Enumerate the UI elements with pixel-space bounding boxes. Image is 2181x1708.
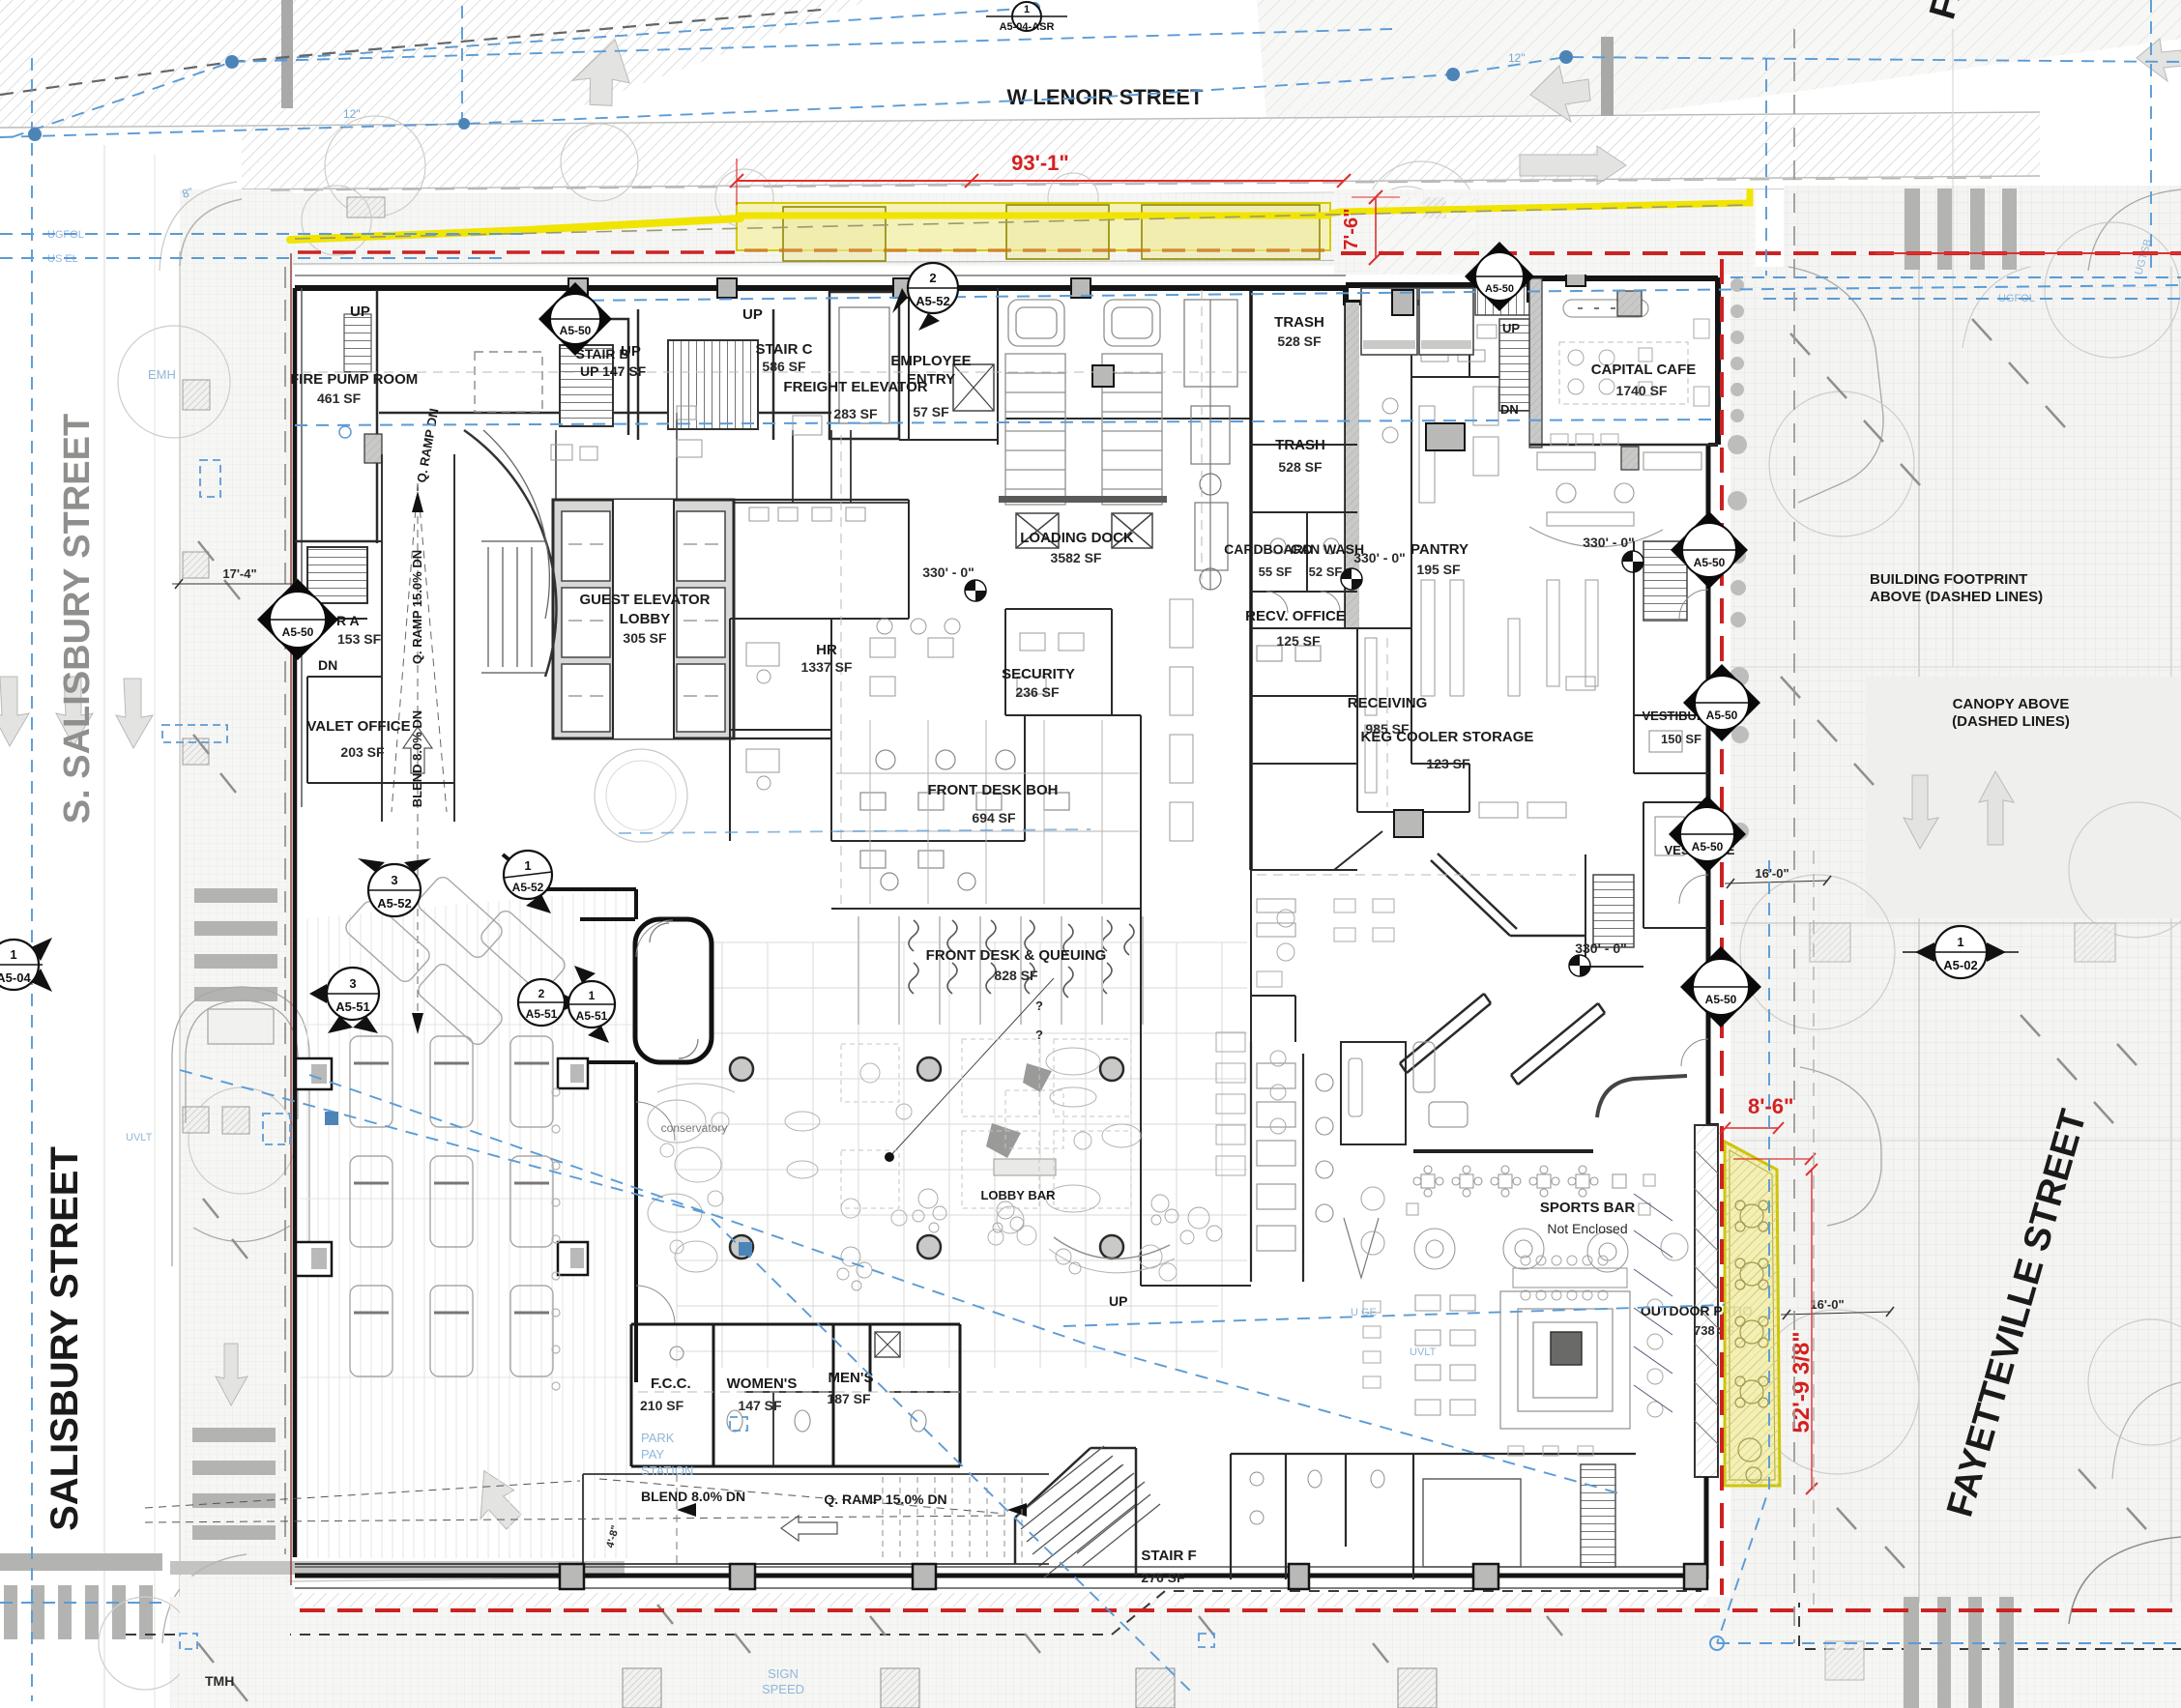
svg-text:PARK: PARK [641,1431,675,1445]
svg-text:1: 1 [1024,4,1030,15]
svg-text:A5-52: A5-52 [512,881,544,894]
svg-text:12": 12" [343,107,361,121]
svg-text:SECURITY: SECURITY [1002,666,1075,682]
svg-text:?: ? [1035,1028,1043,1042]
svg-text:DN: DN [1500,402,1519,417]
svg-text:RECEIVING: RECEIVING [1348,695,1428,711]
svg-text:(DASHED LINES): (DASHED LINES) [1952,713,2070,730]
svg-text:828 SF: 828 SF [994,968,1038,983]
svg-text:R A: R A [336,613,360,628]
svg-text:A5-02: A5-02 [1943,958,1977,972]
svg-text:8'-6": 8'-6" [1748,1094,1793,1118]
svg-text:17'-4": 17'-4" [222,566,256,581]
svg-text:A5-04: A5-04 [0,970,31,985]
svg-text:HR: HR [816,642,837,658]
svg-text:GUEST ELEVATOR: GUEST ELEVATOR [579,592,710,608]
svg-text:VALET OFFICE: VALET OFFICE [306,718,410,735]
svg-text:TRASH: TRASH [1275,437,1325,453]
svg-text:12": 12" [1508,51,1526,65]
svg-text:2: 2 [538,987,545,1000]
svg-text:LOBBY BAR: LOBBY BAR [980,1188,1056,1202]
svg-text:A5-04-ASR: A5-04-ASR [1000,21,1055,33]
svg-text:283 SF: 283 SF [833,406,878,421]
svg-text:1: 1 [589,989,596,1002]
svg-text:A5-50: A5-50 [560,324,592,337]
svg-text:57 SF: 57 SF [913,404,949,420]
svg-text:ENTRY: ENTRY [907,371,955,388]
svg-text:SALISBURY STREET: SALISBURY STREET [44,1146,86,1531]
svg-text:195 SF: 195 SF [1416,562,1461,577]
svg-text:UP: UP [1502,321,1520,335]
svg-text:F.C.C.: F.C.C. [651,1375,691,1392]
svg-text:A5-52: A5-52 [916,294,949,308]
svg-text:BLEND 8.0% DN: BLEND 8.0% DN [641,1489,745,1504]
svg-text:3: 3 [391,873,397,887]
svg-text:UVLT: UVLT [1410,1346,1437,1358]
svg-text:52'-9 3/8": 52'-9 3/8" [1788,1331,1815,1433]
svg-text:?: ? [1035,999,1043,1013]
svg-text:A5-50: A5-50 [282,625,314,639]
svg-text:461 SF: 461 SF [317,391,362,406]
svg-text:SPEED: SPEED [762,1682,804,1696]
svg-text:PAY: PAY [641,1447,664,1462]
svg-text:EMH: EMH [148,367,176,382]
svg-text:PANTRY: PANTRY [1410,541,1469,558]
svg-text:RECV. OFFICE: RECV. OFFICE [1245,608,1346,624]
svg-text:330' - 0": 330' - 0" [1575,941,1627,956]
svg-text:187 SF: 187 SF [827,1391,871,1406]
svg-text:EMPLOYEE: EMPLOYEE [890,353,971,369]
svg-text:ABOVE (DASHED LINES): ABOVE (DASHED LINES) [1870,589,2043,605]
svg-text:1: 1 [1957,935,1963,949]
svg-text:3582 SF: 3582 SF [1051,550,1102,565]
svg-text:FIRE PUMP ROOM: FIRE PUMP ROOM [290,371,418,388]
svg-text:UP 147 SF: UP 147 SF [580,363,647,379]
svg-text:STATION: STATION [641,1463,693,1478]
svg-text:Not Enclosed: Not Enclosed [1547,1221,1627,1236]
svg-text:153 SF: 153 SF [337,631,382,647]
svg-text:330' - 0": 330' - 0" [1583,535,1635,550]
svg-text:586 SF: 586 SF [762,359,806,374]
svg-text:conservatory: conservatory [661,1121,728,1135]
svg-text:TMH: TMH [205,1673,234,1689]
svg-text:SIGN: SIGN [768,1666,799,1681]
svg-text:52 SF: 52 SF [1309,565,1343,579]
svg-text:A5-51: A5-51 [526,1007,558,1021]
svg-text:LOBBY: LOBBY [620,611,671,627]
svg-text:694 SF: 694 SF [972,810,1016,825]
svg-text:528 SF: 528 SF [1278,459,1323,475]
svg-text:123 SF: 123 SF [1426,756,1470,771]
svg-text:BLEND 8.0% DN: BLEND 8.0% DN [410,710,424,807]
svg-text:55 SF: 55 SF [1259,565,1293,579]
svg-text:125 SF: 125 SF [1276,633,1321,649]
svg-text:A5-51: A5-51 [576,1009,608,1023]
svg-text:CANOPY ABOVE: CANOPY ABOVE [1953,696,2070,712]
svg-text:KEG COOLER STORAGE: KEG COOLER STORAGE [1361,729,1534,745]
svg-text:S. SALISBURY STREET: S. SALISBURY STREET [57,414,98,824]
svg-text:TRASH: TRASH [1274,314,1324,331]
svg-text:SPORTS BAR: SPORTS BAR [1540,1200,1636,1216]
svg-text:1: 1 [524,858,531,873]
svg-text:UGFOL: UGFOL [47,229,84,241]
svg-text:16'-0": 16'-0" [1810,1297,1844,1312]
svg-text:528 SF: 528 SF [1277,333,1322,349]
svg-text:7'-6": 7'-6" [1341,208,1362,249]
svg-text:UP: UP [350,304,370,320]
svg-text:DN: DN [318,657,337,673]
svg-text:210 SF: 210 SF [640,1398,684,1413]
svg-text:1740 SF: 1740 SF [1616,383,1668,398]
svg-text:LOADING DOCK: LOADING DOCK [1020,530,1134,546]
svg-text:Q. RAMP 15.0% DN: Q. RAMP 15.0% DN [824,1491,946,1507]
svg-text:STAIR C: STAIR C [756,341,813,358]
svg-text:A5-51: A5-51 [335,999,369,1014]
svg-text:A5-50: A5-50 [1694,556,1726,569]
svg-text:147 SF: 147 SF [738,1398,782,1413]
svg-text:UP: UP [1109,1293,1127,1309]
svg-text:3: 3 [349,976,356,991]
svg-text:UP: UP [621,343,641,360]
svg-text:93'-1": 93'-1" [1011,151,1069,175]
svg-text:16'-0": 16'-0" [1755,866,1788,881]
svg-text:UP: UP [742,306,763,323]
svg-text:CAPITAL CAFE: CAPITAL CAFE [1591,362,1697,378]
svg-text:A5-50: A5-50 [1705,993,1737,1006]
svg-text:Q. RAMP 15.0% DN: Q. RAMP 15.0% DN [410,550,424,664]
svg-text:1: 1 [10,947,16,962]
svg-text:236 SF: 236 SF [1015,684,1060,700]
svg-text:A5-50: A5-50 [1485,283,1514,295]
svg-text:330' - 0": 330' - 0" [1353,550,1406,565]
svg-text:UVLT: UVLT [126,1132,153,1143]
svg-text:A5-50: A5-50 [1692,840,1724,854]
svg-text:STAIR F: STAIR F [1141,1548,1196,1564]
svg-text:305 SF: 305 SF [623,630,667,646]
svg-text:FRONT DESK & QUEUING: FRONT DESK & QUEUING [926,947,1107,964]
svg-text:1337 SF: 1337 SF [801,659,853,675]
svg-text:FRONT DESK BOH: FRONT DESK BOH [928,782,1059,798]
svg-text:2: 2 [929,271,936,285]
svg-text:276 SF: 276 SF [1141,1570,1185,1585]
svg-text:A5-50: A5-50 [1706,709,1738,722]
svg-text:BUILDING FOOTPRINT: BUILDING FOOTPRINT [1870,571,2027,588]
svg-text:WOMEN'S: WOMEN'S [727,1375,798,1392]
svg-text:203 SF: 203 SF [340,744,385,760]
svg-text:US EL: US EL [47,253,78,265]
svg-text:150 SF: 150 SF [1661,732,1701,746]
svg-text:A5-52: A5-52 [377,896,411,911]
svg-text:330' - 0": 330' - 0" [922,565,974,580]
